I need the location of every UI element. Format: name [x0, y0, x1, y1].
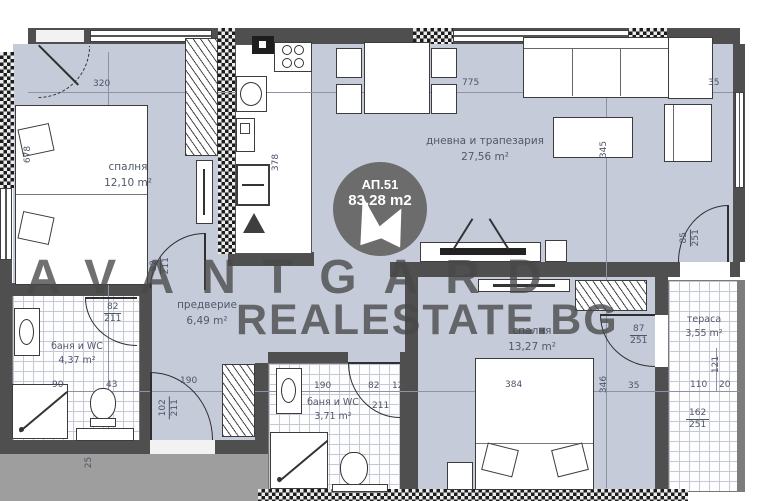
burner-icon — [282, 58, 292, 68]
triangle-symbol — [243, 213, 265, 233]
dimension-label: 678 — [24, 146, 33, 163]
door-size-label: 102211 — [158, 396, 182, 419]
wall-insulated — [0, 52, 14, 188]
sofa-cushion-line — [620, 48, 621, 96]
drain-dot — [277, 477, 282, 482]
hood-icon — [252, 36, 274, 54]
bed-split-line — [16, 194, 147, 195]
toilet — [340, 452, 368, 486]
terrace-rail — [737, 280, 745, 492]
dimension-label: 775 — [462, 79, 479, 88]
entrance-door-leaf — [150, 372, 152, 440]
room-label-terrace: тераса 3,55 m² — [676, 313, 732, 342]
dimension-label: 190 — [314, 382, 331, 391]
wardrobe — [222, 364, 255, 437]
bath-shelf — [332, 484, 388, 492]
entrance-opening — [150, 440, 215, 454]
window — [735, 92, 744, 188]
wall-insulated — [258, 489, 688, 501]
room-name: тераса — [676, 313, 732, 327]
dimension-label: 35 — [628, 382, 639, 391]
wall-insulated — [218, 28, 235, 254]
dimension-label: 110 — [690, 381, 707, 390]
apartment-area: 83,28 m2 — [333, 192, 427, 209]
sofa-cushion-line — [572, 48, 573, 96]
chair — [336, 84, 362, 114]
dimension-label: 320 — [93, 80, 110, 89]
watermark-logo: АП.51 83,28 m2 — [333, 162, 427, 256]
chair — [431, 84, 457, 114]
wall — [730, 262, 740, 277]
burner-icon — [282, 45, 292, 55]
door-size-label: 85251 — [679, 229, 703, 246]
door-size-label: 87251 — [630, 324, 647, 348]
dimension-label: 20 — [719, 381, 730, 390]
dimension-label: 190 — [180, 377, 197, 386]
dimension-fraction: 82211 — [104, 302, 121, 326]
dimension-label: 12 — [392, 382, 403, 391]
toilet-tank — [90, 418, 116, 427]
cabinet-drawer — [240, 123, 250, 134]
dimension-label: 162251 — [686, 408, 709, 432]
apartment-id: АП.51 — [333, 177, 427, 192]
door-leaf — [348, 362, 400, 364]
dimension-fraction: 102211 — [158, 396, 182, 419]
dimension-label: 43 — [106, 381, 117, 390]
dresser — [196, 160, 213, 224]
chair — [431, 48, 457, 78]
room-area: 4,37 m² — [32, 354, 122, 368]
window — [0, 188, 12, 260]
balcony-opening — [36, 30, 84, 42]
dimension-fraction: 87251 — [630, 324, 647, 348]
shower-line — [278, 440, 328, 482]
room-name: дневна и трапезария — [390, 134, 580, 150]
sink-basin — [240, 82, 262, 106]
shower — [12, 384, 68, 439]
dimension-label: 35 — [708, 79, 719, 88]
dimension-label: 346 — [600, 376, 609, 393]
dimension-label: 25 — [85, 457, 94, 468]
dimension-label: 384 — [505, 381, 522, 390]
floor-plan: 320 775 35 378 345 678 90 43 190 190 82 … — [0, 0, 759, 501]
kitchen-sink — [236, 76, 267, 112]
dimension-label: 82 — [368, 382, 379, 391]
chair — [336, 48, 362, 78]
dimension-fraction: 162251 — [686, 408, 709, 432]
room-area: 27,56 m² — [390, 150, 580, 166]
wall — [655, 367, 668, 490]
wardrobe — [185, 38, 218, 156]
hood-dot — [259, 41, 266, 48]
common-area — [0, 452, 268, 501]
dining-table — [364, 42, 430, 114]
shower-line — [19, 391, 67, 432]
burner-icon — [294, 45, 304, 55]
room-label-living: дневна и трапезария 27,56 m² — [390, 134, 580, 166]
toilet — [90, 388, 116, 420]
room-label-bedroom1: спалня 12,10 m² — [78, 160, 178, 192]
dimension-label: 121 — [712, 356, 721, 373]
room-name: баня и WC — [288, 396, 378, 410]
room-area: 3,71 m² — [288, 410, 378, 424]
shower — [270, 432, 328, 489]
room-area: 3,55 m² — [676, 327, 732, 341]
room-area: 12,10 m² — [78, 176, 178, 192]
sofa-back-line — [524, 48, 668, 49]
wall — [0, 440, 150, 454]
burner-icon — [294, 58, 304, 68]
dimension-line — [606, 46, 607, 488]
armchair-line — [673, 105, 674, 161]
armchair — [664, 104, 712, 162]
wall — [400, 352, 414, 492]
dimension-fraction: 85251 — [679, 229, 703, 246]
wall — [655, 277, 668, 315]
terrace-door-leaf — [727, 205, 729, 262]
dimension-label: 378 — [272, 154, 281, 171]
door-size-label: 82211 — [104, 302, 121, 326]
bath-cabinet — [76, 428, 134, 441]
drain-dot — [19, 427, 24, 432]
wall — [215, 440, 268, 454]
fridge — [236, 164, 270, 206]
nightstand — [447, 462, 473, 490]
room-label-bathroom1: баня и WC 4,37 m² — [32, 340, 122, 369]
fridge-handle — [242, 184, 264, 186]
cabinet — [236, 118, 255, 152]
dimension-label: 345 — [600, 141, 609, 158]
wall — [268, 352, 348, 363]
sofa-corner — [668, 37, 713, 99]
dresser-handle — [203, 169, 205, 215]
watermark-site: REALESTATE.BG — [236, 296, 619, 345]
room-label-bathroom2: баня и WC 3,71 m² — [288, 396, 378, 425]
room-name: спалня — [78, 160, 178, 176]
room-name: баня и WC — [32, 340, 122, 354]
sofa — [523, 37, 669, 98]
stove — [274, 42, 312, 72]
dimension-label: 90 — [52, 381, 63, 390]
